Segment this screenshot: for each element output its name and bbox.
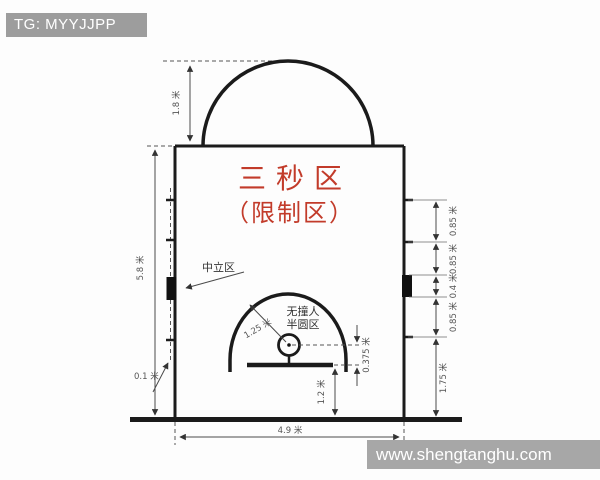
neutral-zone-arrow xyxy=(186,272,244,288)
watermark-text: www.shengtanghu.com xyxy=(376,445,552,464)
title-line1: 三秒区 xyxy=(238,162,352,195)
screenshot-root: 1.8 米 5.8 米 0.1 米 中 xyxy=(0,0,600,480)
no-charge-area-label-line2: 半圆区 xyxy=(287,317,320,331)
no-charge-radius-label: 1.25 米 xyxy=(242,316,274,341)
right-neutral-zone-mark xyxy=(402,275,412,297)
no-charge-area-label-line1: 无撞人 xyxy=(287,304,320,318)
telegram-badge-text: TG: MYYJJPP xyxy=(14,16,116,33)
telegram-badge: TG: MYYJJPP xyxy=(6,13,147,37)
court-diagram: 1.8 米 5.8 米 0.1 米 中 xyxy=(0,0,600,480)
backboard-endline-label: 1.2 米 xyxy=(316,379,327,404)
neutral-zone-label: 中立区 xyxy=(202,260,235,274)
ring-backboard-label: 0.375 米 xyxy=(361,337,372,373)
lane-length-label: 5.8 米 xyxy=(135,255,146,280)
line-width-label: 0.1 米 xyxy=(134,371,159,382)
free-throw-semicircle xyxy=(203,61,373,146)
title-line2: （限制区） xyxy=(225,199,355,227)
right-segment-label-3: 0.4 米 xyxy=(448,273,459,298)
watermark-bar: www.shengtanghu.com xyxy=(367,440,600,469)
dome-depth-label: 1.8 米 xyxy=(171,90,182,115)
right-segment-label-2: 0.85 米 xyxy=(448,243,459,274)
basket-ring-center xyxy=(287,343,291,347)
left-neutral-zone-mark xyxy=(167,277,177,300)
right-extension-lines xyxy=(408,200,447,337)
right-segment-label-1: 0.85 米 xyxy=(448,205,459,236)
right-segment-label-5: 1.75 米 xyxy=(438,362,449,393)
lane-width-label: 4.9 米 xyxy=(278,425,303,436)
right-segment-label-4: 0.85 米 xyxy=(448,301,459,332)
